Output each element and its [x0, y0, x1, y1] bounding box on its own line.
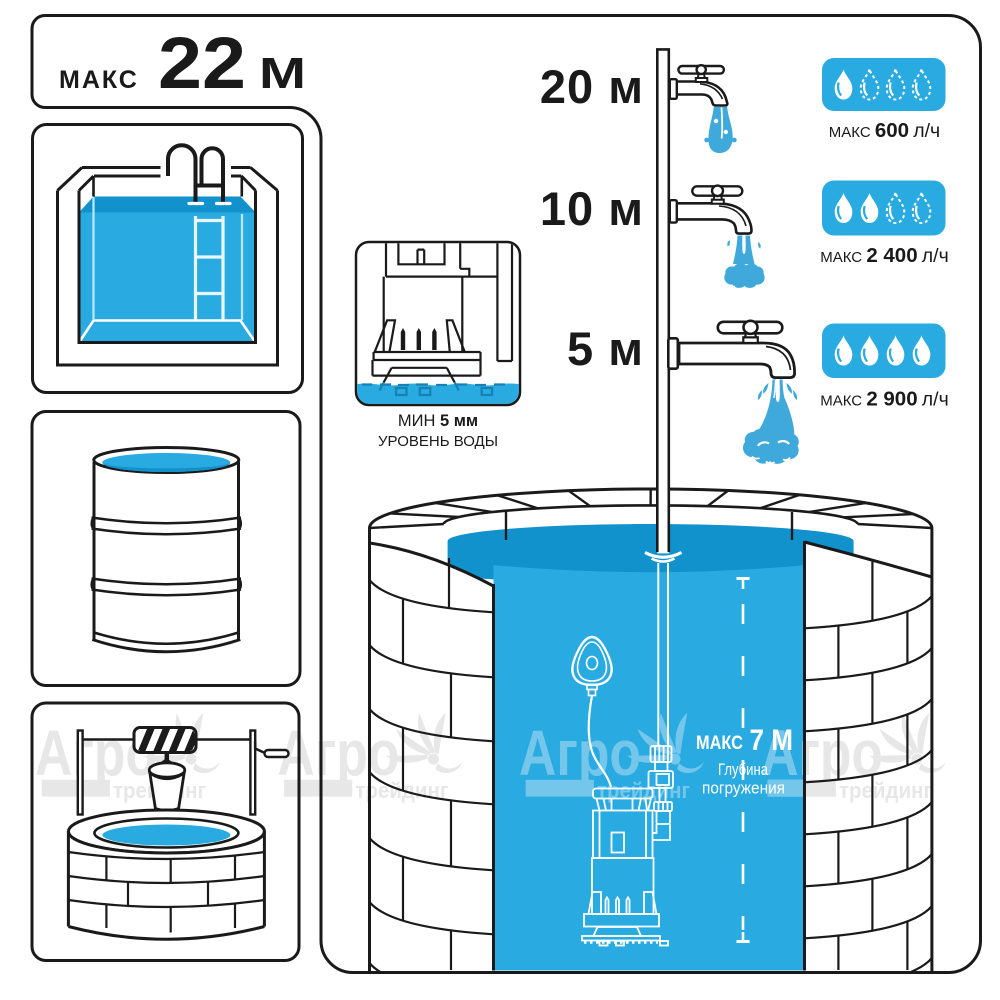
svg-text:МИН 5 мм: МИН 5 мм: [398, 412, 478, 430]
svg-text:22: 22: [158, 23, 246, 104]
svg-text:МАКС: МАКС: [59, 66, 139, 94]
svg-text:М: М: [259, 49, 306, 98]
svg-text:20 м: 20 м: [540, 60, 644, 113]
svg-text:УРОВЕНЬ ВОДЫ: УРОВЕНЬ ВОДЫ: [378, 433, 498, 450]
svg-text:10 м: 10 м: [540, 182, 644, 235]
svg-text:5 м: 5 м: [567, 322, 644, 375]
svg-text:Глубина: Глубина: [718, 760, 768, 779]
svg-text:МАКС: МАКС: [696, 732, 743, 754]
svg-text:погружения: погружения: [702, 779, 785, 798]
svg-text:7 М: 7 М: [750, 724, 794, 757]
